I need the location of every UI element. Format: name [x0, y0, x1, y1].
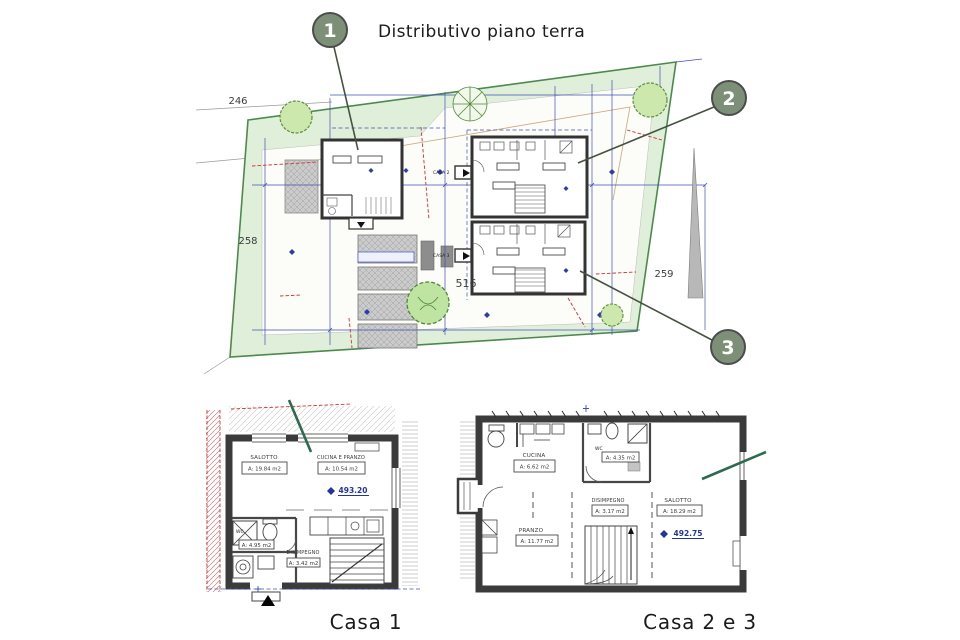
toilet-icon	[488, 425, 504, 447]
svg-text:492.75: 492.75	[674, 529, 703, 538]
marker-3: 3	[711, 330, 745, 364]
parcel-246: 246	[228, 96, 247, 107]
stairs	[330, 538, 384, 584]
architectural-drawing-sheet: CASA 2 CASA 3	[0, 0, 960, 640]
casa1-caption: Casa 1	[330, 610, 403, 634]
casa23-wc-name: WC	[595, 446, 603, 452]
site-house-casa1	[322, 140, 409, 229]
wall-niche	[355, 443, 379, 451]
survey-line	[196, 102, 332, 110]
casa3-site-label: CASA 3	[433, 253, 450, 259]
marker-2: 2	[712, 81, 746, 115]
drawing-svg: CASA 2 CASA 3	[0, 0, 960, 640]
window	[736, 452, 749, 480]
boundary-hatch-red	[206, 410, 220, 592]
site-plan: CASA 2 CASA 3	[196, 13, 746, 374]
bathroom-sink-icon	[588, 423, 618, 439]
north-sliver	[688, 148, 703, 298]
door-arc	[586, 466, 602, 482]
casa1-floor-plan: SALOTTO A: 19.84 m2 CUCINA E PRANZO A: 1…	[206, 400, 420, 634]
elevation-diamond-icon	[660, 530, 668, 538]
parcel-258: 258	[238, 236, 257, 247]
washing-machine-icon	[233, 556, 253, 578]
casa1-salotto-area: A: 19.84 m2	[248, 467, 281, 473]
survey-line	[196, 158, 250, 163]
entrance	[250, 580, 282, 606]
casa1-disimpegno-area: A: 3.42 m2	[289, 561, 319, 567]
boundary-hatch	[229, 406, 395, 432]
casa23-elevation: 492.75	[660, 529, 704, 539]
casa1-cucina-name: CUCINA E PRANZO	[317, 455, 365, 461]
casa1-disimpegno-name: DISIMPEGNO	[286, 550, 319, 556]
dimension-tick	[583, 405, 589, 412]
tree-icon	[280, 101, 312, 133]
sink-icon	[258, 556, 274, 569]
casa2-site-label: CASA 2	[433, 170, 450, 176]
tree-icon	[453, 87, 487, 121]
elevation-diamond-icon	[327, 487, 335, 495]
casa1-salotto-name: SALOTTO	[250, 455, 278, 461]
casa1-cucina-area: A: 10.54 m2	[325, 467, 358, 473]
casa1-elevation: 493.20	[327, 486, 369, 496]
closet	[628, 462, 640, 471]
casa23-disimpegno-name: DISIMPEGNO	[591, 498, 624, 504]
cupboard	[482, 520, 497, 553]
marker-3-number: 3	[721, 337, 734, 359]
casa23-disimpegno-area: A: 3.17 m2	[595, 509, 625, 515]
casa23-pranzo-name: PRANZO	[519, 528, 544, 534]
kitchen-counter	[310, 517, 383, 535]
window	[252, 431, 286, 444]
kitchen-units	[520, 424, 564, 447]
neighbor-hatch	[402, 420, 418, 586]
toilet-icon	[263, 519, 277, 541]
casa23-cucina-name: CUCINA	[523, 453, 546, 459]
marker-1: 1	[313, 13, 347, 47]
parcel-259: 259	[654, 269, 673, 280]
casa23-salotto-name: SALOTTO	[664, 498, 692, 504]
tree-icon	[601, 304, 623, 326]
casa1-wc-area: A: 4.95 m2	[242, 543, 272, 549]
survey-line	[204, 357, 230, 374]
tree-icon	[407, 282, 449, 324]
svg-text:493.20: 493.20	[339, 486, 368, 495]
casa23-floor-plan: CUCINA A: 6.62 m2 WC A: 4.35 m2 DISIMPEG…	[458, 405, 766, 634]
shower-icon	[628, 424, 647, 443]
casa23-cucina-area: A: 6.62 m2	[520, 465, 550, 471]
stairs	[585, 526, 637, 584]
window	[733, 536, 749, 570]
tree-icon	[633, 83, 667, 117]
casa1-wc-name: WC	[236, 529, 244, 535]
casa23-pranzo-area: A: 11.77 m2	[521, 539, 554, 545]
window	[389, 468, 402, 508]
section-line	[702, 452, 766, 479]
casa23-salotto-area: A: 18.29 m2	[663, 509, 696, 515]
casa23-wc-area: A: 4.35 m2	[606, 455, 636, 461]
paved-strip	[285, 160, 318, 213]
marker-1-number: 1	[323, 20, 336, 42]
casa23-caption: Casa 2 e 3	[643, 610, 757, 634]
page-title: Distributivo piano terra	[378, 22, 585, 42]
parcel-516: 516	[456, 277, 477, 290]
marker-2-number: 2	[722, 88, 735, 110]
